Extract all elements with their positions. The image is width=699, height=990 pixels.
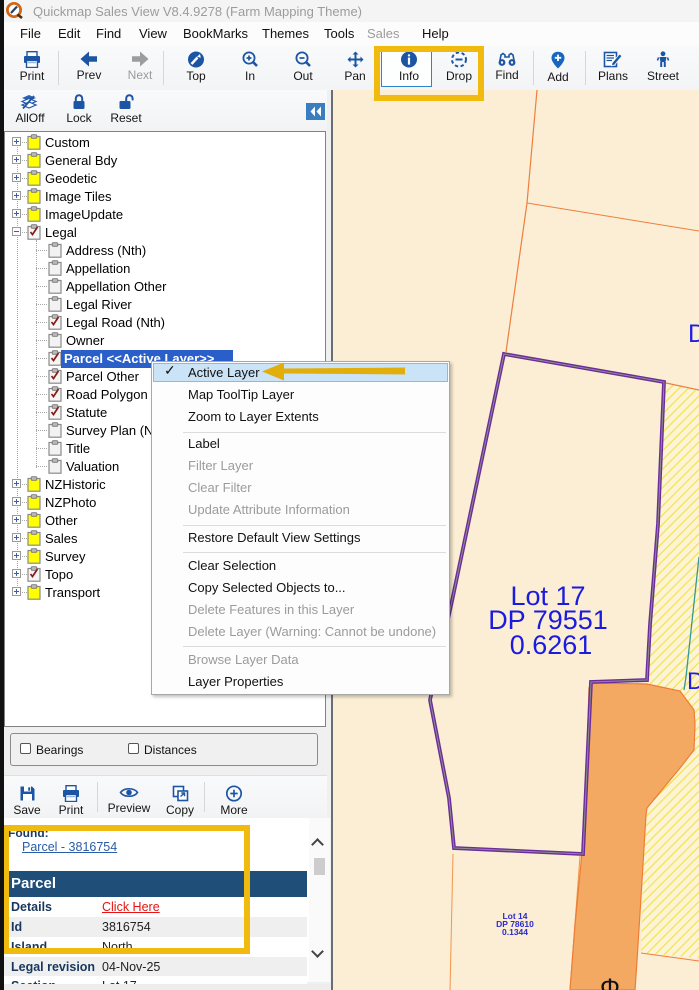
svg-text:D: D [688, 320, 699, 348]
svg-text:Φ: Φ [600, 974, 620, 990]
svg-text:0.6261: 0.6261 [510, 630, 593, 660]
svg-text:D: D [687, 668, 699, 695]
svg-text:0.1344: 0.1344 [502, 927, 528, 937]
